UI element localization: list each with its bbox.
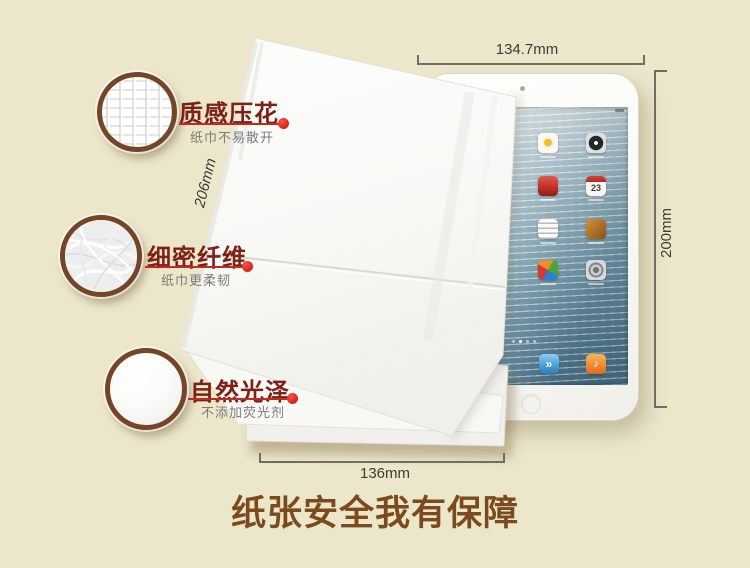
badge-embossed-texture (97, 72, 177, 152)
feature-dot-fibers (242, 261, 253, 272)
feature-dot-emboss (278, 118, 289, 129)
fiber-texture (65, 220, 137, 292)
footer-slogan: 纸张安全我有保障 (0, 485, 750, 536)
badge-natural-luster (105, 348, 187, 430)
feature-line-luster (188, 398, 289, 400)
product-banner: 23 » ♪ 134.7mm 200mm (0, 0, 750, 568)
dimension-line-bottom (259, 453, 505, 463)
badge-fine-fibers (60, 215, 142, 297)
dimension-tissue-width: 136mm (345, 465, 425, 482)
feature-line-emboss (179, 123, 280, 125)
feature-line-fibers (145, 266, 244, 268)
feature-subtitle-emboss: 纸巾不易散开 (190, 127, 274, 146)
feature-subtitle-fibers: 纸巾更柔韧 (161, 270, 231, 289)
feature-dot-luster (287, 393, 298, 404)
feature-subtitle-luster: 不添加荧光剂 (201, 402, 285, 421)
